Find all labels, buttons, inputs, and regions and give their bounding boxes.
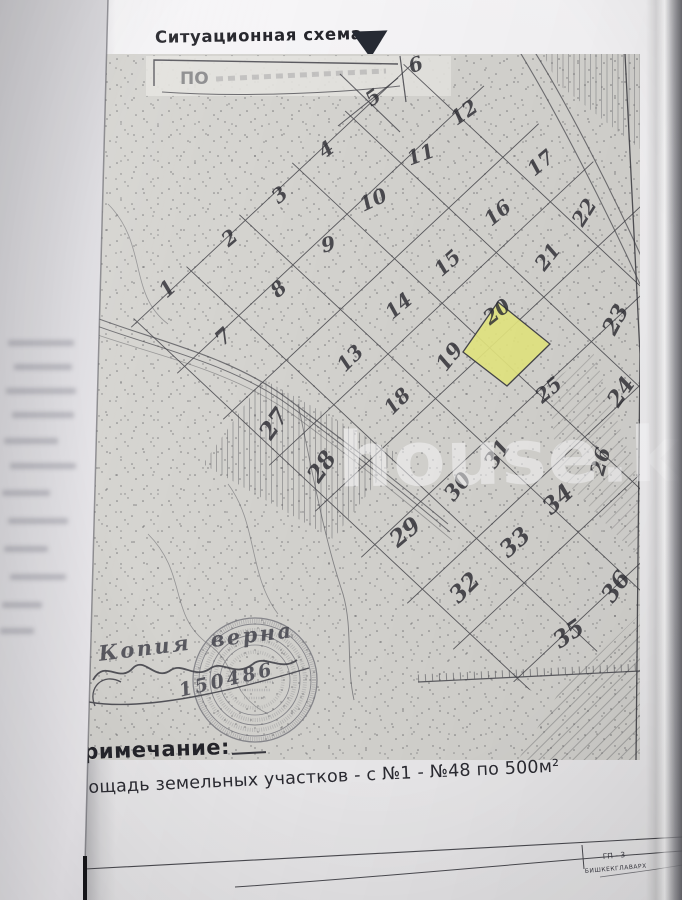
ghost-text-line — [10, 574, 66, 580]
ghost-text-line — [8, 518, 68, 524]
ghost-text-line — [4, 546, 48, 552]
ghost-text-line — [4, 438, 58, 444]
ghost-text-line — [2, 490, 50, 496]
ghost-text-line — [0, 628, 34, 634]
titleblock: ГП - 3 БИШКЕКГЛАВАРХ — [85, 835, 682, 900]
ghost-text-line — [6, 388, 76, 394]
titleblock-org: БИШКЕКГЛАВАРХ — [585, 863, 647, 875]
street-label: ПО — [180, 69, 209, 89]
note-heading: римечание: — [83, 735, 230, 764]
ghost-text-line — [10, 463, 76, 469]
ghost-text-line — [8, 340, 74, 346]
watermark: house.kg — [337, 409, 682, 505]
ghost-text-line — [14, 364, 72, 370]
ghost-text-line — [2, 602, 42, 608]
titleblock-code: ГП - 3 — [602, 850, 625, 861]
page-title: Ситуационная схема — [155, 24, 363, 47]
photo-of-document: { "page": { "title": "Ситуационная схема… — [0, 0, 682, 900]
ghost-text-line — [12, 412, 74, 418]
